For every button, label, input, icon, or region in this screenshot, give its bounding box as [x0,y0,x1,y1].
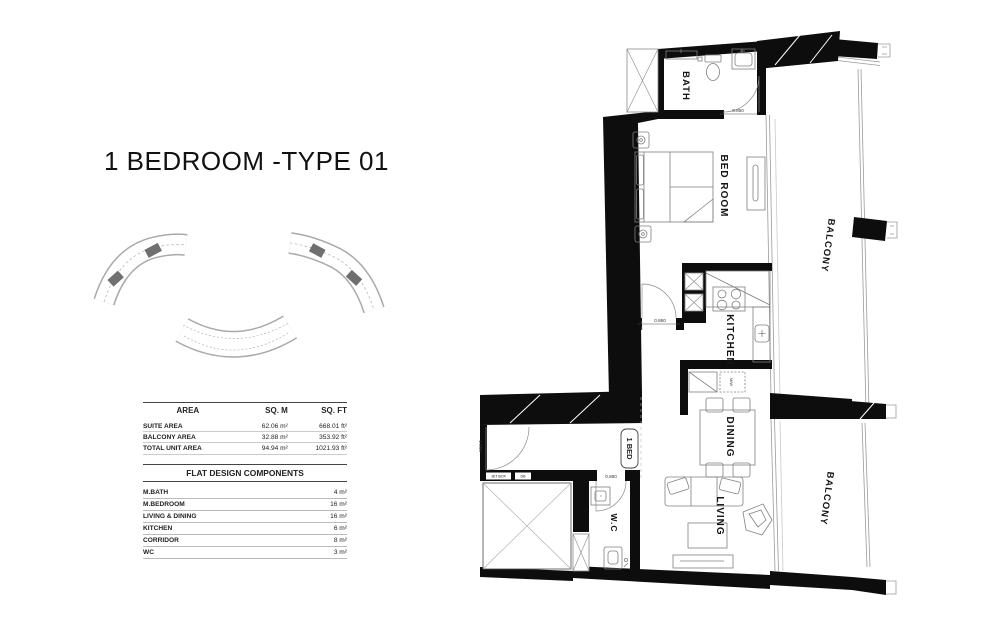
bath-label: BATH [680,71,691,101]
page-title: 1 BEDROOM -TYPE 01 [104,146,389,177]
site-key-plan [90,225,400,375]
wc-label: W.C [609,513,619,532]
jet-box-label: JET BOX [491,475,507,479]
sqm-header: SQ. M [233,403,288,420]
component-value: 16 m² [245,498,347,510]
key-building-bottom [182,323,290,350]
bath-door [723,76,759,112]
row-sqft: 1021.93 ft² [288,443,347,454]
component-value: 4 m² [245,487,347,499]
key-building-right [290,243,374,310]
wardrobe [747,157,765,210]
toilet [698,55,721,81]
row-name: TOTAL UNIT AREA [143,443,233,454]
kitchen-label: KITCHEN [724,314,735,365]
wc-right-wall [630,470,640,573]
row-name: BALCONY AREA [143,432,233,443]
wc-top-wall [589,470,597,481]
bottom-wall [573,566,770,589]
component-value: 3 m² [245,546,347,558]
top-right-wedge [833,39,878,59]
sqft-header: SQ. FT [288,403,347,420]
kitchen-top-wall [682,263,772,271]
entry-width-dim: 1.050 [478,440,483,452]
row-sqm: 94.94 m² [233,443,288,454]
bed [635,152,713,222]
tables-panel: AREA SQ. M SQ. FT SUITE AREA 62.06 m² 66… [143,402,347,559]
components-title: FLAT DESIGN COMPONENTS [143,464,347,482]
wc-sink [591,487,610,505]
balcony-column [852,217,887,241]
table-row: M.BEDROOM 16 m² [143,498,347,510]
tv-unit [673,555,733,568]
component-value: 16 m² [245,510,347,522]
entry-wedge-wall [480,391,642,425]
balcony-bottom-wall [770,571,886,595]
sideboard [689,372,717,392]
microwave-label: M/W [729,378,734,386]
table-row: KITCHEN 6 m² [143,522,347,534]
table-row: BALCONY AREA 32.88 m² 353.92 ft² [143,432,347,443]
shaft-small [573,534,589,571]
row-name: SUITE AREA [143,419,233,432]
balcony-upper-label: BALCONY [818,218,836,273]
unit-badge: 1 BED [621,429,638,468]
living-label: LIVING [714,496,725,535]
bath-bottom-wall [658,110,724,119]
balcony-divider-wall [770,393,852,419]
dining-label: DINING [724,417,735,458]
kitchen-shaft-block [682,263,706,323]
component-name: WC [143,546,245,558]
area-header: AREA [143,403,233,420]
component-value: 6 m² [245,522,347,534]
floorplan-page: { "page": { "title": "1 BEDROOM -TYPE 01… [0,0,1000,620]
bedroom-door [642,284,676,318]
area-table: AREA SQ. M SQ. FT SUITE AREA 62.06 m² 66… [143,402,347,455]
row-sqft: 668.01 ft² [288,419,347,432]
row-sqft: 353.92 ft² [288,432,347,443]
armchair [743,504,772,535]
balcony-lower-label: BALCONY [817,471,835,526]
sofa [665,477,743,506]
table-row: LIVING & DINING 16 m² [143,510,347,522]
shaft-elevator [483,483,571,569]
component-name: CORRIDOR [143,534,245,546]
component-value: 8 m² [245,534,347,546]
table-row: TOTAL UNIT AREA 94.94 m² 1021.93 ft² [143,443,347,454]
db-label: DB [521,475,527,479]
kitchen-sink [755,325,769,342]
table-row: CORRIDOR 8 m² [143,534,347,546]
bath-top-wall [658,41,765,59]
component-name: KITCHEN [143,522,245,534]
electrical-boxes: JET BOX DB [486,473,531,480]
wc-door-dim: 0.860 [605,474,617,479]
table-row: SUITE AREA 62.06 m² 668.01 ft² [143,419,347,432]
table-row: M.BATH 4 m² [143,487,347,499]
component-name: LIVING & DINING [143,510,245,522]
bedroom-label: BED ROOM [718,155,729,218]
wc-toilet [604,547,628,569]
bath-door-dim: 0.860 [732,108,744,113]
unit-badge-text: 1 BED [625,437,634,460]
key-building-left [104,243,186,302]
component-name: M.BATH [143,487,245,499]
floor-plan: BATH BED ROOM KITCHEN DINING LIVING W.C … [470,15,1000,615]
left-wall [603,111,658,397]
column-notch [878,44,897,594]
wc-left-wall [573,470,589,532]
shaft-top-left [627,49,658,112]
row-sqm: 32.88 m² [233,432,288,443]
component-name: M.BEDROOM [143,498,245,510]
kitchen-stub-wall [680,360,688,415]
row-sqm: 62.06 m² [233,419,288,432]
table-row: WC 3 m² [143,546,347,558]
kitchen-counter [706,271,770,362]
bedroom-door-dim: 0.860 [654,318,666,323]
components-table: M.BATH 4 m² M.BEDROOM 16 m² LIVING & DIN… [143,487,347,559]
entry-door [486,427,529,470]
